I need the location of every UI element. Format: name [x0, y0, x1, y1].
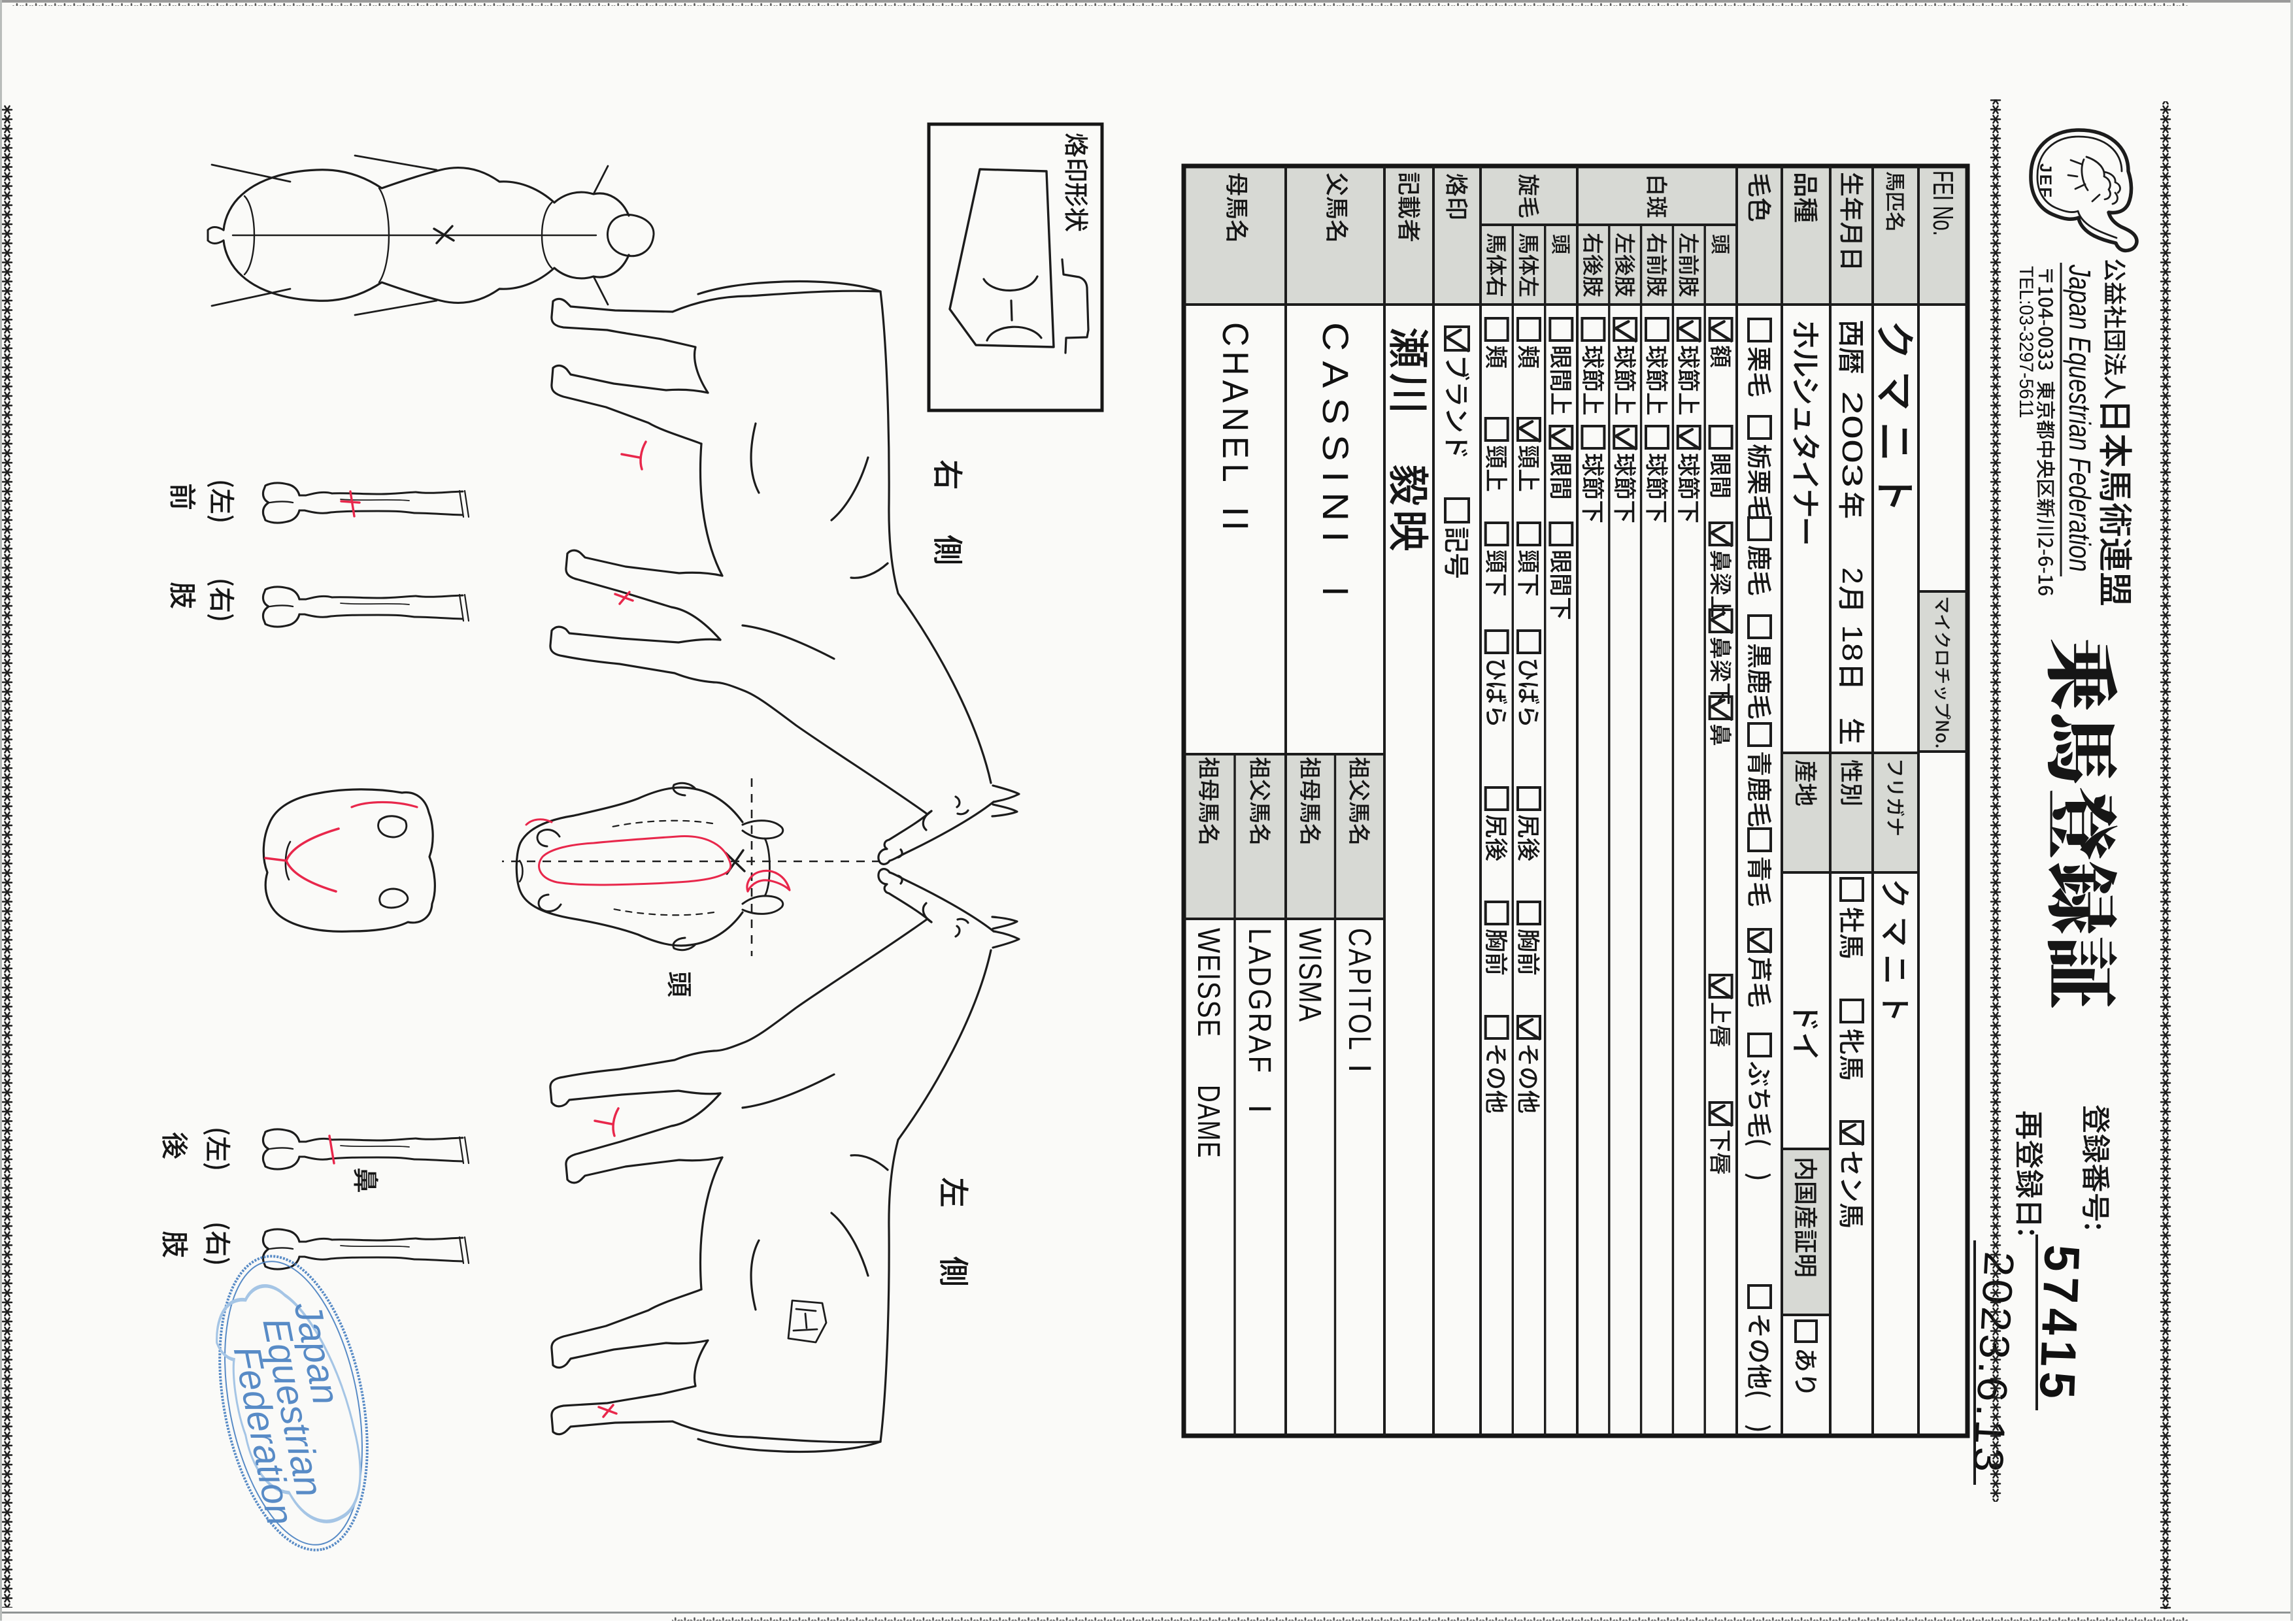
svg-text:LADGRAF: LADGRAF	[1242, 928, 1277, 1075]
svg-text:DAME: DAME	[1191, 1085, 1226, 1159]
svg-text:WISMA: WISMA	[1292, 928, 1327, 1023]
svg-text:18: 18	[1836, 625, 1868, 661]
svg-text:WEISSE: WEISSE	[1191, 928, 1226, 1038]
svg-text:TEL:03-3297-5611: TEL:03-3297-5611	[2015, 266, 2037, 418]
svg-text:II: II	[1215, 506, 1256, 535]
svg-text:FEI No.: FEI No.	[1927, 171, 1959, 236]
svg-text:JEF: JEF	[2036, 163, 2054, 199]
svg-text:CASSINI: CASSINI	[1315, 322, 1356, 552]
svg-text:CAPITOL: CAPITOL	[1342, 928, 1377, 1052]
svg-text:2: 2	[1836, 567, 1868, 584]
svg-text:I: I	[1342, 1064, 1377, 1072]
svg-text:2003: 2003	[1836, 391, 1868, 488]
svg-text:I: I	[1242, 1104, 1277, 1113]
svg-text:Japan Equestrian Federation: Japan Equestrian Federation	[2063, 264, 2097, 572]
svg-text:CHANEL: CHANEL	[1215, 322, 1256, 487]
svg-text:I: I	[1315, 586, 1356, 597]
